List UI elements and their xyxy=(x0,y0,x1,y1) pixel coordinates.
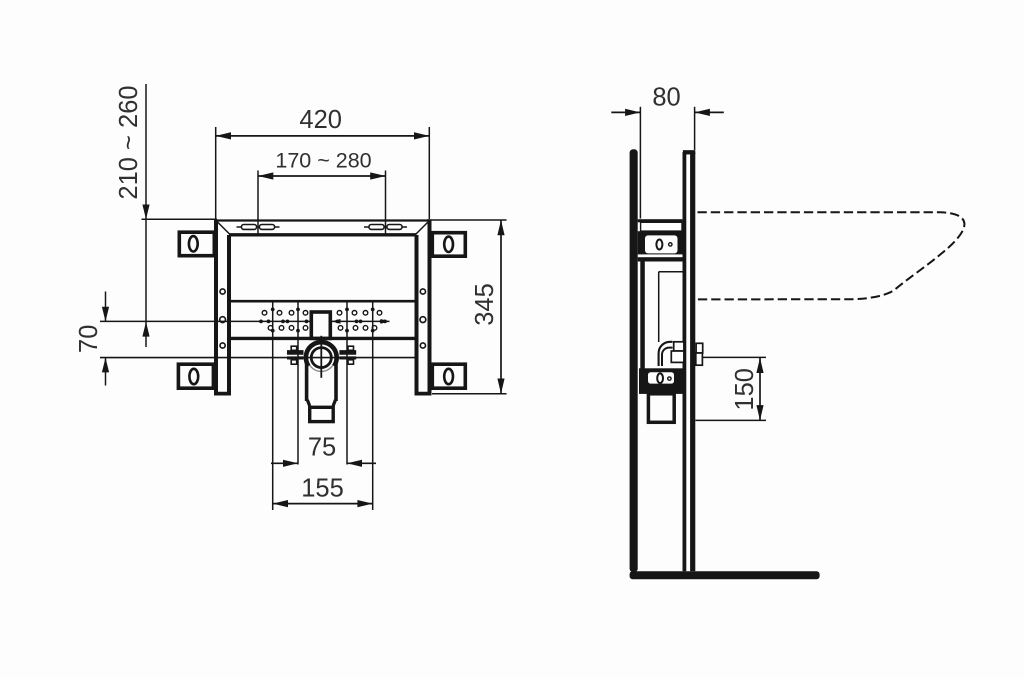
svg-text:155: 155 xyxy=(301,475,344,503)
svg-text:150: 150 xyxy=(731,368,759,411)
svg-text:80: 80 xyxy=(652,83,680,111)
svg-text:70: 70 xyxy=(75,325,103,353)
svg-text:210 ~ 260: 210 ~ 260 xyxy=(115,85,143,199)
svg-text:75: 75 xyxy=(308,434,336,462)
svg-text:170 ~ 280: 170 ~ 280 xyxy=(275,148,371,172)
svg-text:345: 345 xyxy=(471,283,499,326)
svg-text:420: 420 xyxy=(299,106,342,134)
